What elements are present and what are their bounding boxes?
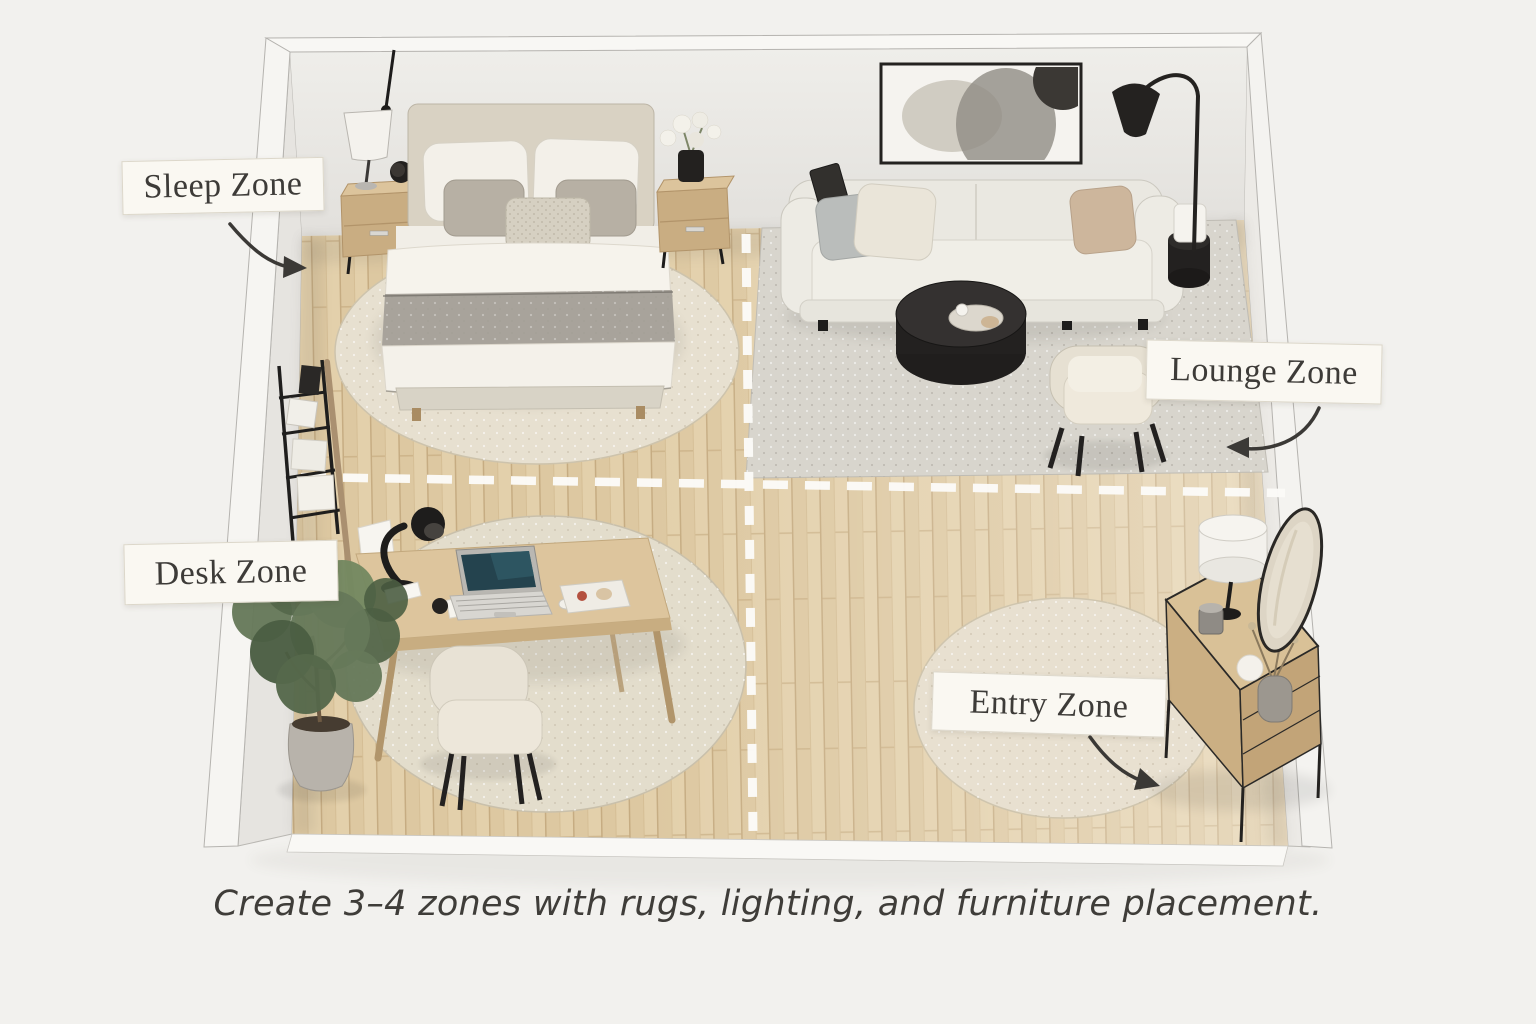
- vase: [678, 150, 704, 182]
- cup: [956, 304, 968, 316]
- wall-art: [881, 50, 1093, 180]
- bed-base: [396, 386, 664, 410]
- drawer-handle: [370, 231, 388, 236]
- blanket-runner-texture: [382, 290, 675, 346]
- instruction-caption: Create 3–4 zones with rugs, lighting, an…: [0, 884, 1536, 924]
- zone-label-entry: Entry Zone: [931, 671, 1167, 737]
- pillow-cream: [853, 183, 937, 262]
- drawer-handle: [686, 227, 704, 232]
- books-top: [286, 398, 317, 428]
- bed: [382, 104, 675, 421]
- pillow-lumbar-pattern: [506, 198, 590, 250]
- dark-box: [299, 365, 322, 395]
- books-middle: [291, 439, 327, 471]
- zone-label-desk: Desk Zone: [123, 540, 338, 605]
- zone-label-sleep: Sleep Zone: [121, 157, 324, 215]
- cube-lamp: [1174, 204, 1206, 242]
- side-table: [1168, 204, 1210, 288]
- pillow-tan: [1069, 185, 1137, 255]
- armchair-cushion: [1068, 356, 1142, 392]
- zone-label-lounge: Lounge Zone: [1145, 340, 1382, 405]
- white-jug: [1237, 655, 1263, 681]
- lamp-shade: [344, 110, 392, 161]
- bed-foot-right: [636, 406, 645, 419]
- bed-foot-left: [412, 408, 421, 421]
- grey-vase: [1258, 676, 1292, 722]
- candle-cup: [1199, 603, 1223, 634]
- room-scene: [0, 0, 1536, 1024]
- decor-stone: [981, 316, 999, 328]
- chair-seat: [438, 700, 542, 754]
- coffee-table: [896, 281, 1026, 385]
- books-bottom: [297, 475, 335, 511]
- room-zoning-illustration: Sleep Zone Lounge Zone Desk Zone Entry Z…: [0, 0, 1536, 1024]
- speaker: [432, 598, 448, 614]
